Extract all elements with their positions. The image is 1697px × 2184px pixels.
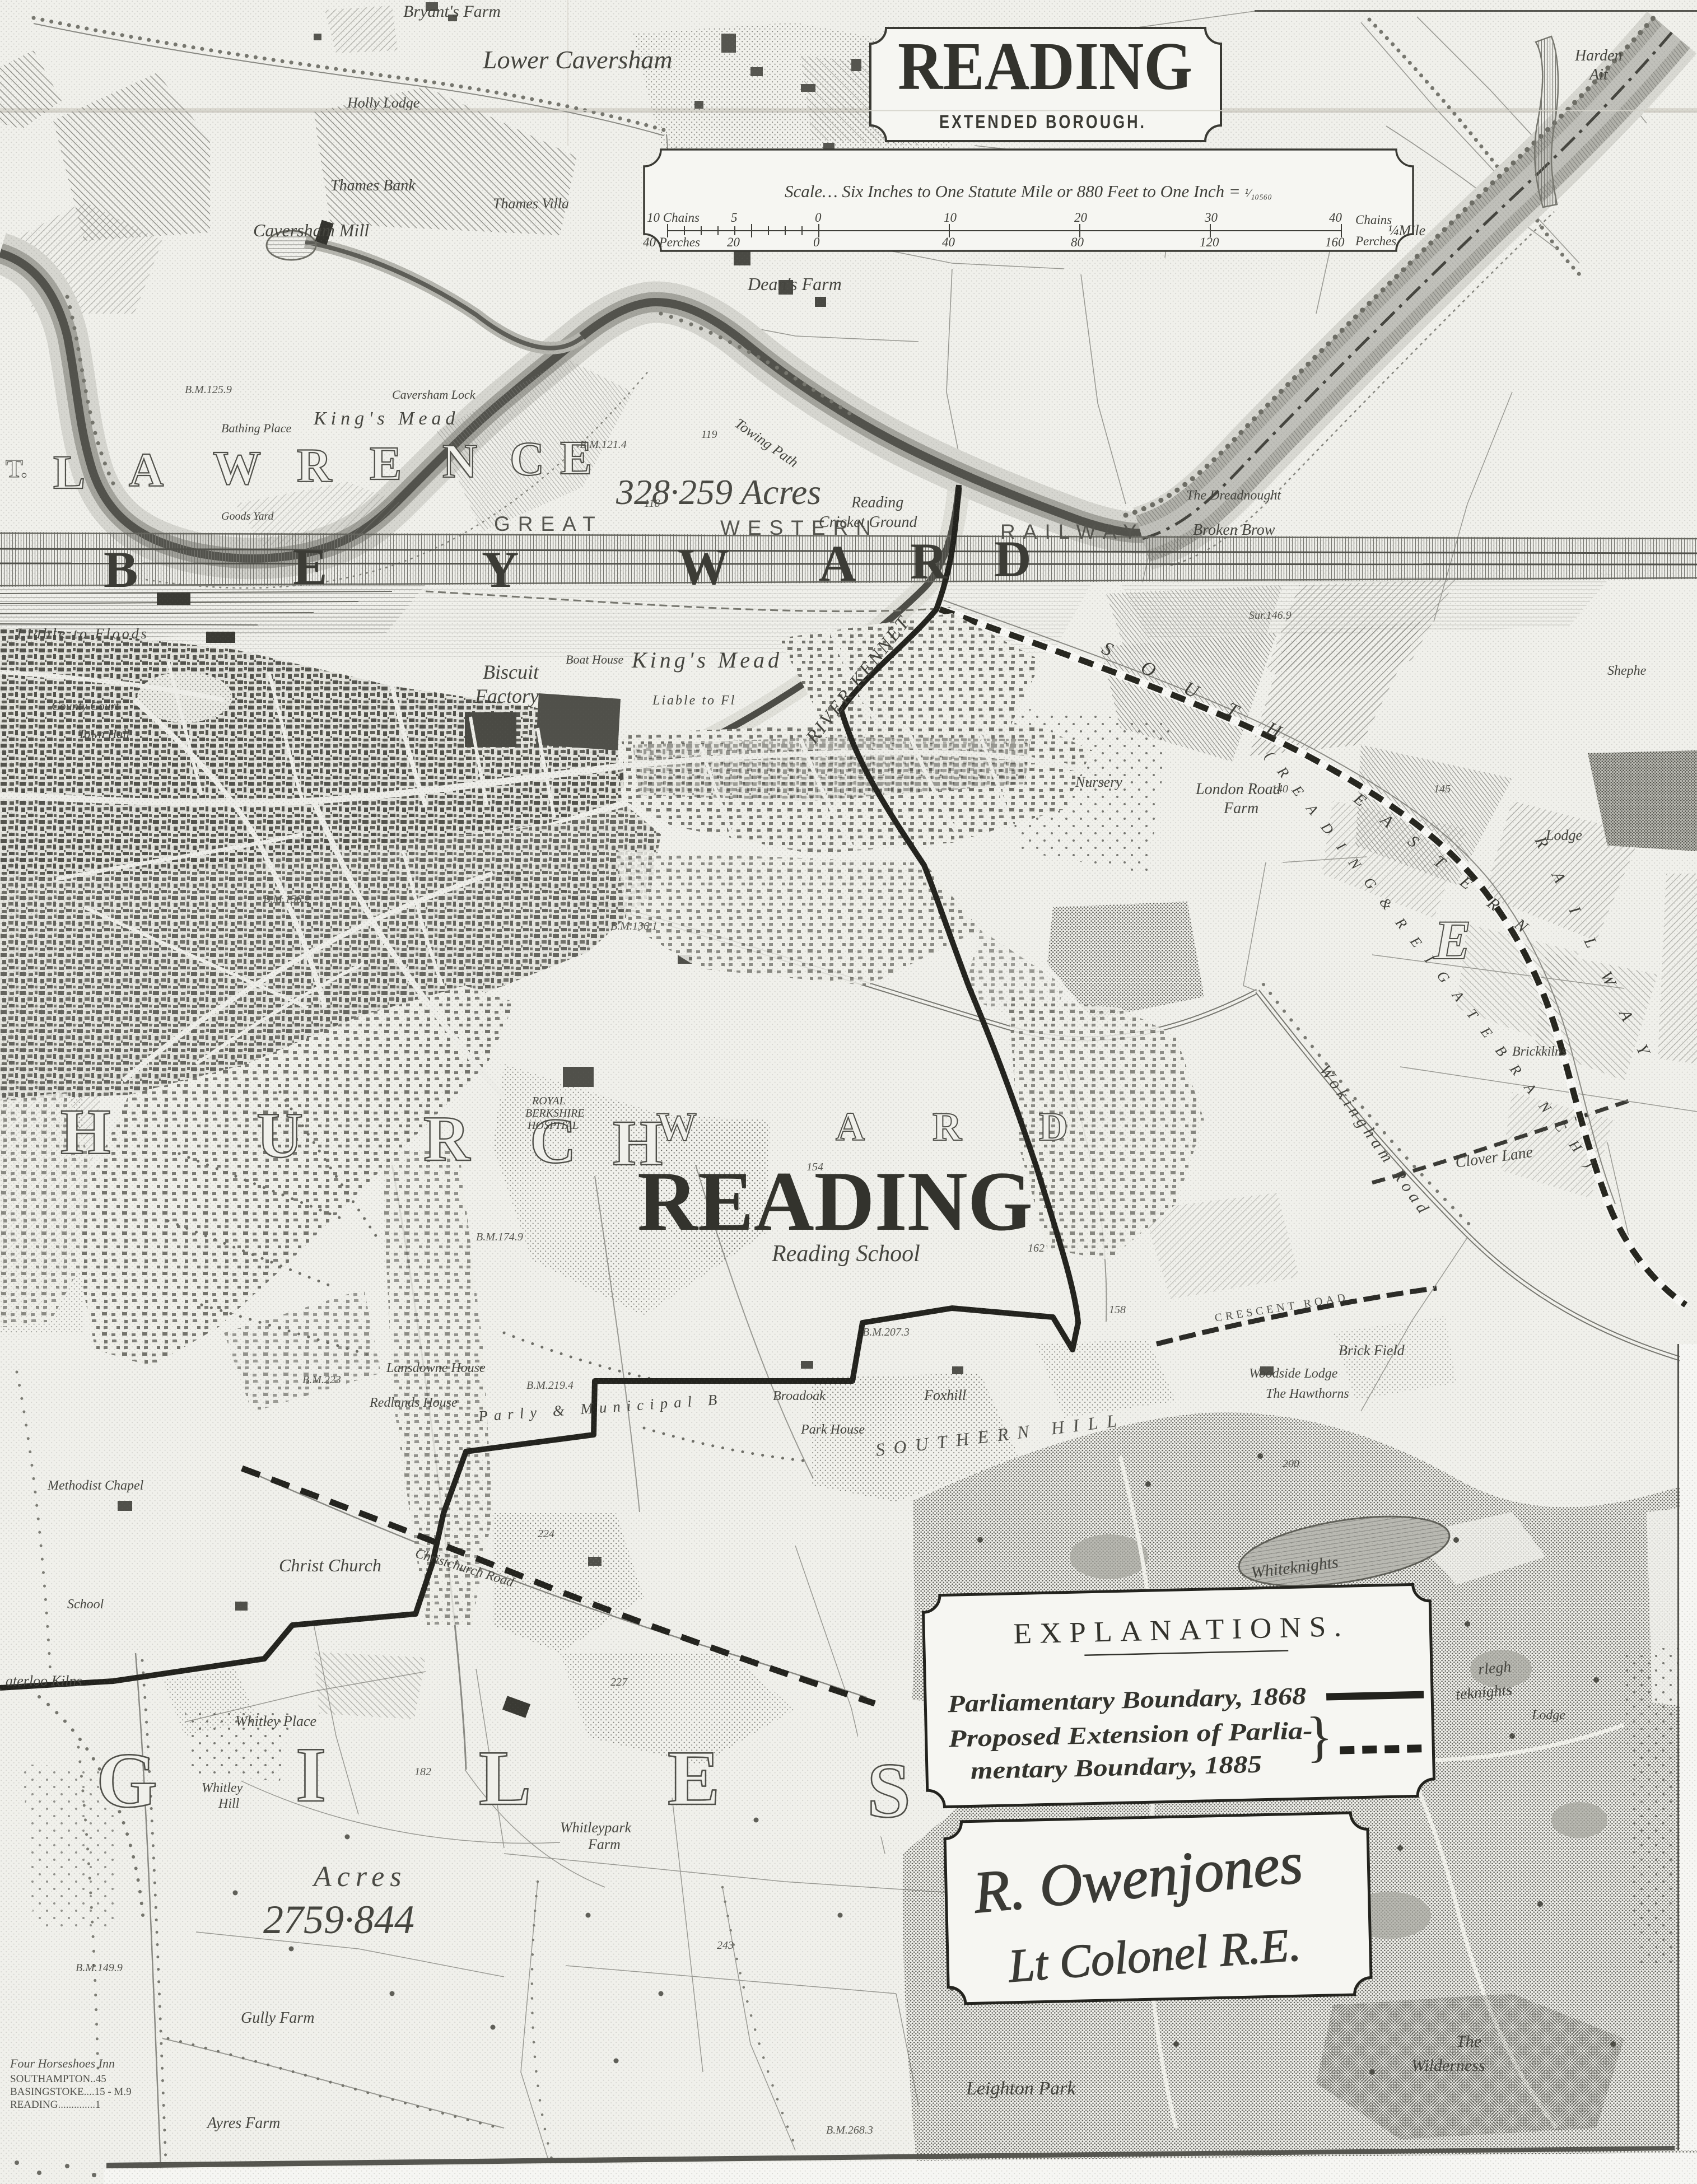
svg-text:Caversham Lock: Caversham Lock: [392, 388, 476, 402]
svg-text:W: W: [213, 441, 261, 494]
svg-text:Boat House: Boat House: [566, 652, 624, 666]
svg-text:B: B: [104, 541, 138, 598]
svg-text:20: 20: [1074, 211, 1088, 225]
svg-text:Caversham Mill: Caversham Mill: [253, 220, 369, 240]
svg-text:R: R: [933, 1104, 962, 1149]
svg-text:HOSPITAL: HOSPITAL: [527, 1119, 579, 1132]
svg-text:B.M.149.9: B.M.149.9: [76, 1962, 123, 1974]
svg-text:B.M.136.1: B.M.136.1: [610, 920, 658, 932]
svg-text:Liable to Fl: Liable to Fl: [652, 693, 736, 708]
svg-text:Brick Field: Brick Field: [1339, 1342, 1405, 1359]
svg-text:E: E: [293, 538, 327, 595]
svg-text:Brickkilns: Brickkilns: [1512, 1044, 1567, 1059]
svg-text:Harden: Harden: [1574, 47, 1623, 64]
svg-text:0: 0: [815, 211, 822, 225]
svg-text:Thames Villa: Thames Villa: [493, 195, 569, 212]
svg-text:Methodist Chapel: Methodist Chapel: [47, 1478, 144, 1493]
svg-text:H: H: [60, 1096, 110, 1168]
svg-text:G: G: [96, 1737, 157, 1824]
svg-text:Cricket Ground: Cricket Ground: [819, 514, 917, 531]
svg-text:119: 119: [701, 428, 717, 441]
svg-text:10 Chains: 10 Chains: [647, 211, 700, 225]
svg-text:Y: Y: [482, 541, 519, 598]
svg-text:227: 227: [610, 1676, 628, 1688]
svg-text:145: 145: [1434, 783, 1451, 795]
svg-text:T.: T.: [6, 454, 27, 483]
svg-text:Chains: Chains: [1355, 213, 1392, 227]
svg-text:L: L: [53, 445, 85, 499]
svg-text:Lodge: Lodge: [1531, 1708, 1565, 1723]
svg-text:County Court: County Court: [52, 699, 119, 713]
svg-text:Ait: Ait: [1588, 66, 1609, 83]
svg-text:King's Mead: King's Mead: [631, 647, 782, 673]
svg-text:¼Mile: ¼Mile: [1388, 222, 1425, 239]
svg-text:140: 140: [1271, 783, 1288, 795]
svg-text:GREAT: GREAT: [494, 512, 603, 535]
svg-text:rlegh: rlegh: [1477, 1658, 1512, 1678]
svg-text:Liable to Floods: Liable to Floods: [16, 626, 149, 642]
svg-text:Lower Caversham: Lower Caversham: [482, 45, 673, 74]
svg-text:10: 10: [944, 211, 957, 225]
svg-text:A: A: [129, 443, 164, 497]
svg-text:Gully Farm: Gully Farm: [241, 2009, 314, 2027]
svg-text:Nursery: Nursery: [1075, 774, 1122, 790]
svg-text:5: 5: [731, 211, 738, 225]
svg-text:L: L: [479, 1735, 531, 1822]
svg-text:A: A: [836, 1104, 865, 1149]
svg-text:B.M.156.2: B.M.156.2: [263, 893, 310, 906]
svg-text:B.M.219.4: B.M.219.4: [526, 1379, 574, 1392]
svg-text:The Hawthorns: The Hawthorns: [1266, 1387, 1349, 1401]
svg-text:Farm: Farm: [1223, 800, 1258, 817]
svg-text:Scale… Six Inches to One Statu: Scale… Six Inches to One Statute Mile or…: [785, 181, 1272, 201]
svg-text:243: 243: [717, 1939, 734, 1952]
svg-text:Goods Yard: Goods Yard: [221, 510, 274, 522]
svg-text:aterloo Kilns: aterloo Kilns: [6, 1673, 82, 1689]
svg-text:Lansdowne House: Lansdowne House: [386, 1361, 486, 1375]
svg-text:D: D: [1039, 1104, 1068, 1149]
svg-text:182: 182: [414, 1766, 431, 1778]
svg-text:The: The: [1456, 2032, 1481, 2051]
svg-text:King's Mead: King's Mead: [313, 408, 460, 429]
svg-text:Acres: Acres: [312, 1861, 407, 1893]
svg-text:S: S: [867, 1747, 911, 1834]
svg-text:R: R: [910, 533, 948, 590]
svg-text:D: D: [994, 530, 1031, 587]
svg-text:Bathing Place: Bathing Place: [221, 421, 291, 435]
svg-text:Whitleypark: Whitleypark: [560, 1819, 632, 1836]
svg-text:I: I: [296, 1732, 326, 1818]
svg-text:Woodside Lodge: Woodside Lodge: [1249, 1366, 1338, 1381]
svg-text:Holly Lodge: Holly Lodge: [347, 95, 419, 111]
svg-text:Foxhill: Foxhill: [924, 1387, 966, 1403]
svg-text:Dean's Farm: Dean's Farm: [747, 274, 842, 294]
svg-text:80: 80: [1071, 235, 1084, 249]
svg-text:A: A: [819, 535, 856, 592]
svg-text:READING: READING: [898, 29, 1192, 104]
svg-text:Broadoak: Broadoak: [773, 1389, 826, 1403]
svg-text:40: 40: [942, 235, 955, 249]
svg-text:B.M.268.3: B.M.268.3: [826, 2124, 873, 2136]
svg-text:B.M.125.9: B.M.125.9: [185, 384, 232, 396]
svg-text:Thames Bank: Thames Bank: [330, 177, 416, 194]
svg-text:224: 224: [538, 1528, 554, 1540]
svg-text:READING: READING: [637, 1154, 1033, 1248]
svg-text:The Dreadnought: The Dreadnought: [1186, 488, 1281, 503]
svg-text:Reading School: Reading School: [771, 1241, 920, 1267]
svg-text:Bryant's Farm: Bryant's Farm: [403, 2, 501, 21]
svg-text:Whitley: Whitley: [202, 1781, 243, 1795]
svg-text:Town Hall: Town Hall: [78, 727, 130, 741]
svg-text:Park House: Park House: [800, 1422, 865, 1437]
svg-text:Redlands House: Redlands House: [369, 1396, 458, 1410]
svg-text:B.M.223: B.M.223: [302, 1374, 341, 1386]
svg-text:W: W: [656, 1104, 697, 1149]
svg-text:B.M.174.9: B.M.174.9: [476, 1231, 523, 1243]
svg-text:120: 120: [1200, 235, 1219, 249]
svg-text:Christ Church: Christ Church: [279, 1555, 381, 1575]
svg-text:B.M.121.4: B.M.121.4: [580, 438, 627, 451]
svg-text:Broken Brow: Broken Brow: [1193, 521, 1275, 539]
svg-text:162: 162: [1028, 1242, 1045, 1254]
svg-text:0: 0: [813, 235, 820, 249]
svg-text:Shephe: Shephe: [1607, 664, 1647, 678]
svg-text:E: E: [668, 1735, 720, 1822]
svg-text:Hill: Hill: [218, 1796, 240, 1811]
svg-text:B.M.207.3: B.M.207.3: [863, 1326, 910, 1338]
svg-text:Sur.146.9: Sur.146.9: [1249, 609, 1292, 622]
svg-text:R: R: [297, 438, 332, 492]
svg-text:Wilderness: Wilderness: [1411, 2056, 1485, 2075]
svg-text:158: 158: [1109, 1304, 1126, 1316]
svg-text:118: 118: [644, 497, 660, 510]
svg-text:U: U: [257, 1100, 303, 1171]
svg-text:EXTENDED BOROUGH.: EXTENDED BOROUGH.: [939, 111, 1146, 133]
svg-text:Biscuit: Biscuit: [483, 661, 539, 683]
svg-text:160: 160: [1325, 235, 1345, 249]
svg-text:Reading: Reading: [851, 494, 903, 511]
svg-text:BERKSHIRE: BERKSHIRE: [525, 1107, 585, 1119]
svg-text:Ayres Farm: Ayres Farm: [206, 2115, 280, 2132]
svg-text:Farm: Farm: [588, 1836, 621, 1852]
svg-text:ROYAL: ROYAL: [532, 1095, 566, 1107]
svg-text:40 Perches: 40 Perches: [643, 235, 700, 249]
svg-text:Factory: Factory: [474, 685, 539, 707]
svg-text:20: 20: [727, 235, 740, 249]
svg-text:C: C: [510, 432, 544, 486]
svg-text:School: School: [67, 1597, 104, 1612]
svg-text:200: 200: [1283, 1458, 1299, 1470]
svg-text:154: 154: [806, 1161, 823, 1173]
svg-text:London Road: London Road: [1195, 781, 1281, 798]
svg-text:E: E: [370, 436, 402, 490]
svg-text:2759·844: 2759·844: [263, 1897, 414, 1942]
svg-text:N: N: [442, 434, 477, 488]
svg-text:Leighton Park: Leighton Park: [966, 2078, 1076, 2099]
svg-text:R: R: [423, 1103, 471, 1174]
svg-text:40: 40: [1329, 211, 1342, 225]
svg-text:Whitley Place: Whitley Place: [235, 1713, 316, 1729]
svg-text:30: 30: [1204, 211, 1218, 225]
svg-text:W: W: [678, 538, 729, 595]
svg-text:}: }: [1305, 1705, 1334, 1768]
